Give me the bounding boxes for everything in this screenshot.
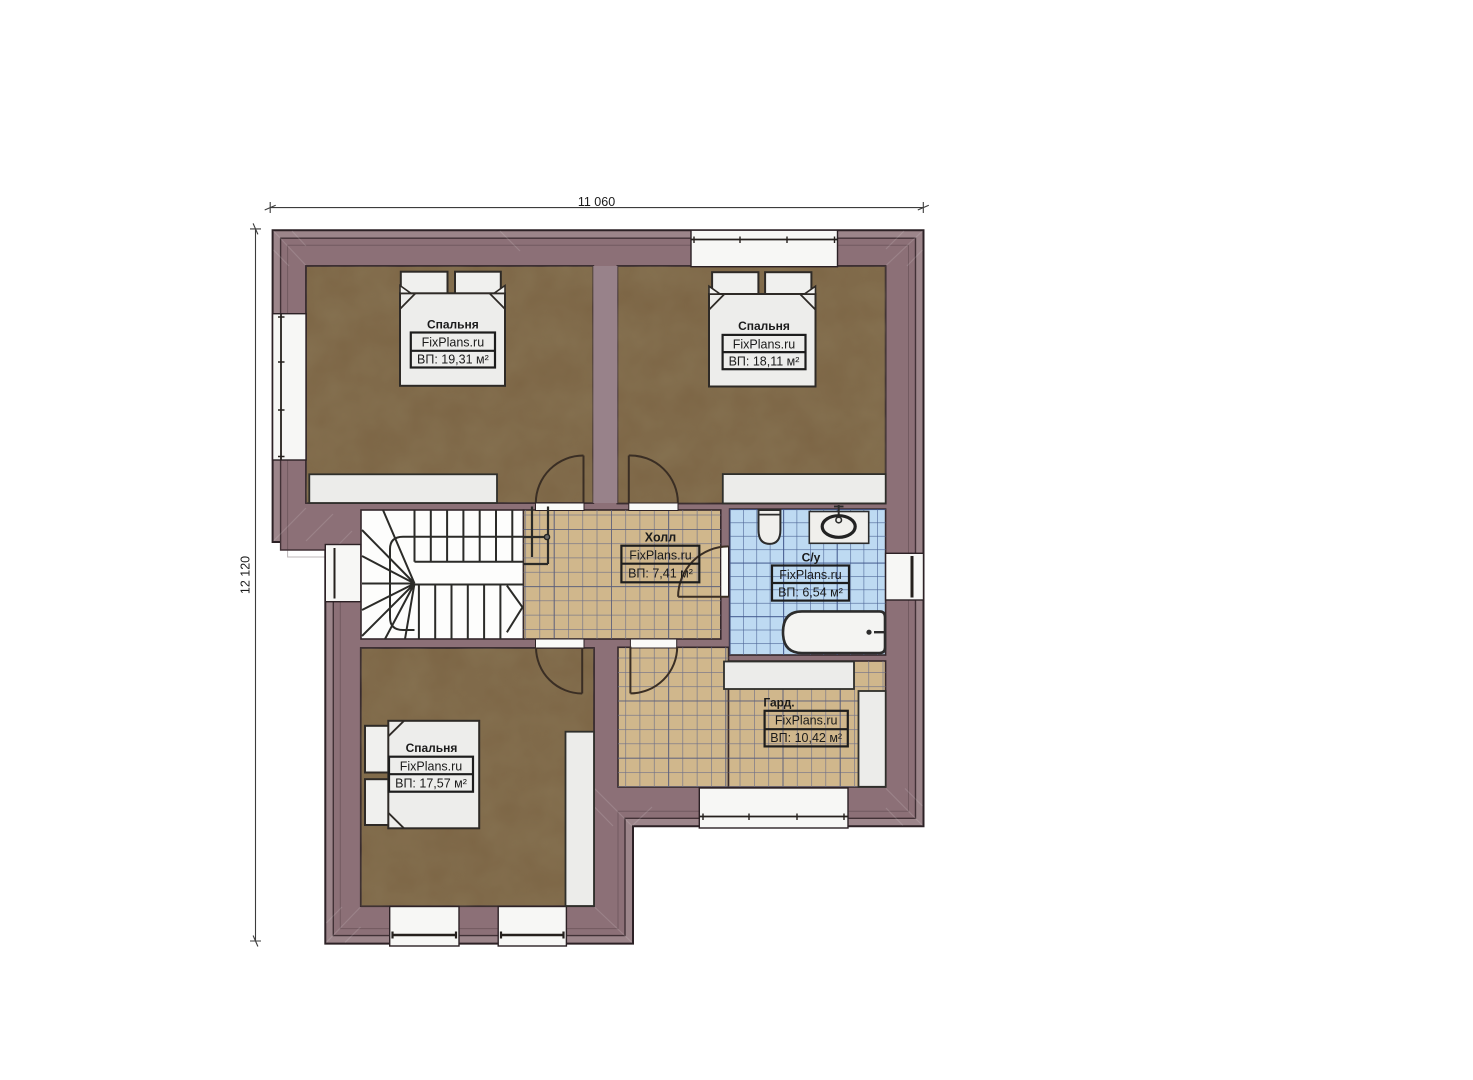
svg-text:FixPlans.ru: FixPlans.ru [422,335,485,349]
svg-text:ВП: 10,42 м²: ВП: 10,42 м² [770,731,842,745]
svg-text:ВП: 7,41 м²: ВП: 7,41 м² [628,566,693,580]
svg-text:ВП: 17,57 м²: ВП: 17,57 м² [395,777,467,791]
svg-text:Спальня: Спальня [406,741,458,755]
svg-text:ВП: 19,31 м²: ВП: 19,31 м² [417,353,489,367]
svg-text:Холл: Холл [645,531,676,545]
svg-text:FixPlans.ru: FixPlans.ru [775,714,838,728]
svg-text:11 060: 11 060 [578,195,615,209]
svg-text:С/у: С/у [802,551,821,565]
svg-text:12 120: 12 120 [239,556,253,594]
svg-text:ВП: 6,54 м²: ВП: 6,54 м² [778,586,843,600]
svg-text:Спальня: Спальня [427,318,479,332]
svg-text:FixPlans.ru: FixPlans.ru [629,549,692,563]
svg-text:FixPlans.ru: FixPlans.ru [400,760,463,774]
svg-text:Спальня: Спальня [738,319,790,333]
svg-text:ВП: 18,11 м²: ВП: 18,11 м² [729,354,800,368]
svg-text:FixPlans.ru: FixPlans.ru [779,568,842,582]
svg-text:Гард.: Гард. [763,696,794,710]
svg-text:FixPlans.ru: FixPlans.ru [733,337,796,351]
